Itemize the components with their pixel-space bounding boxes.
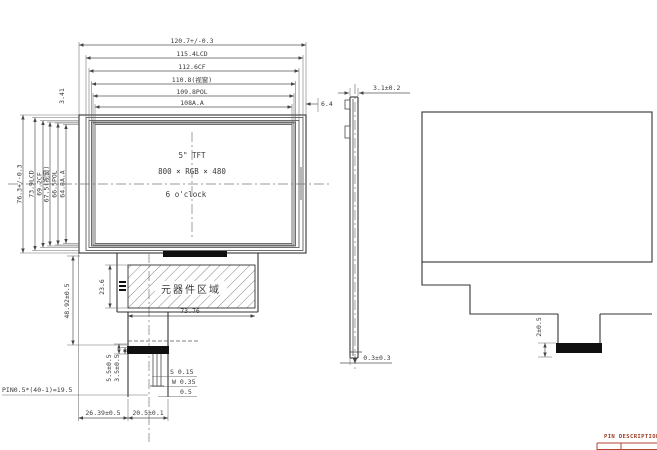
rear-step-left xyxy=(422,262,558,314)
dim-component-area-width: 73.76 xyxy=(180,307,200,315)
dim-fpc-length: 48.92±0.5 xyxy=(63,283,71,318)
engineering-drawing-canvas: 120.7+/-0.3 115.4LCD 112.6CF 110.8(视窗) 1… xyxy=(0,0,657,450)
fpc-stiffener-bar xyxy=(127,346,169,354)
dim-thickness: 3.1±0.2 xyxy=(373,84,400,92)
dim-bottom-right: 20.5±0.1 xyxy=(132,409,163,417)
pin-description-table: PIN DESCRIPTION xyxy=(597,434,657,450)
dim-top-gap: 3.41 xyxy=(58,88,66,104)
dim-aa-width: 108A.A xyxy=(180,99,204,107)
panel-viewing-label: 6 o'clock xyxy=(166,190,207,199)
dim-fpc-a: 5.5±0.5 xyxy=(105,354,113,381)
dim-window-width: 110.8(视窗) xyxy=(172,75,212,84)
pcb-outline xyxy=(117,251,258,312)
rear-fpc-connector xyxy=(556,343,602,353)
dim-pol-width: 109.8POL xyxy=(176,88,207,96)
component-area-label: 元器件区域 xyxy=(161,283,221,296)
connector-dimension xyxy=(538,343,556,357)
pad-width-spec: W 0.35 xyxy=(172,378,196,386)
dim-bottom-gap: 0.3±0.3 xyxy=(363,354,390,362)
rear-view: 2±0.5 xyxy=(422,112,652,357)
dim-cf-width: 112.6CF xyxy=(178,63,205,71)
side-profile xyxy=(345,97,362,358)
fpc-bond-bar xyxy=(163,251,227,257)
lcd-outline-drawing: 120.7+/-0.3 115.4LCD 112.6CF 110.8(视窗) 1… xyxy=(0,0,657,450)
dim-fpc-b: 3.5±0.5 xyxy=(113,354,121,381)
pin-pitch-spec: PIN0.5*(40-1)=19.5 xyxy=(2,386,73,394)
side-view: 3.1±0.2 0.3±0.3 xyxy=(338,84,410,372)
pin-table-title: PIN DESCRIPTION xyxy=(604,434,657,440)
pad-pitch-spec: 0.5 xyxy=(180,388,192,396)
front-view: 120.7+/-0.3 115.4LCD 112.6CF 110.8(视窗) 1… xyxy=(2,37,333,442)
dim-connector: 2±0.5 xyxy=(535,317,543,337)
dim-overall-width: 120.7+/-0.3 xyxy=(170,37,213,45)
dim-right-gap: 6.4 xyxy=(321,100,333,108)
dim-bottom-left: 26.39±0.5 xyxy=(85,409,120,417)
rear-outline xyxy=(422,112,652,262)
pad-space-spec: S 0.15 xyxy=(170,368,194,376)
dim-component-area-height: 23.6 xyxy=(98,279,106,295)
right-gap-dimension xyxy=(306,98,318,112)
dim-lcd-width: 115.4LCD xyxy=(176,50,207,58)
